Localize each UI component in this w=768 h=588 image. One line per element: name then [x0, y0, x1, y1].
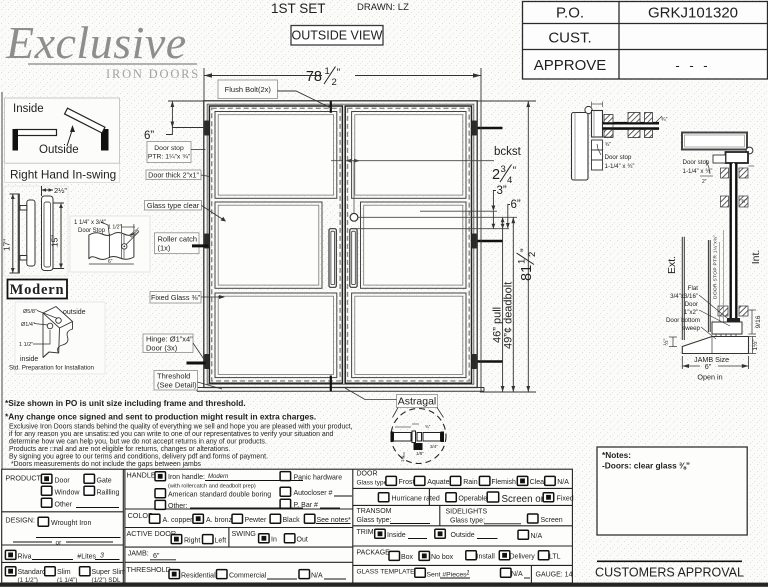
svg-text:1-1/4” x ¾”: 1-1/4” x ¾” [605, 163, 635, 170]
svg-text:HANDLE: HANDLE [127, 471, 156, 480]
svg-text:Delivery: Delivery [510, 554, 536, 561]
svg-text:1 1/2”: 1 1/2” [108, 225, 122, 231]
svg-text:(See Detail): (See Detail) [157, 380, 197, 389]
svg-text:Ext.: Ext. [666, 256, 678, 274]
svg-text:Door thick 2”x1”: Door thick 2”x1” [148, 170, 199, 179]
svg-text:6”: 6” [705, 362, 712, 371]
svg-text:Inside: Inside [387, 532, 406, 539]
svg-text:Iron handle:: Iron handle: [168, 474, 205, 481]
svg-text:1/8”: 1/8” [416, 451, 424, 456]
svg-text:6”: 6” [144, 130, 154, 142]
svg-text:Screen or: Screen or [502, 494, 545, 505]
svg-text:or: or [56, 540, 63, 547]
svg-text:sweep: sweep [682, 325, 700, 332]
svg-text:*Size shown in PO is unit size: *Size shown in PO is unit size including… [5, 398, 246, 408]
svg-text:Flat: Flat [688, 285, 699, 292]
svg-text:1 1/2”: 1 1/2” [19, 342, 33, 348]
svg-text:Gate: Gate [97, 478, 112, 485]
svg-text:P. Bar #: P. Bar # [294, 502, 318, 509]
svg-text:Products are □nal and are not: Products are □nal and are not eligible f… [9, 446, 230, 453]
svg-text:N/A: N/A [511, 571, 523, 578]
svg-text:Standard: Standard [18, 569, 47, 576]
svg-text:Other: Other [55, 502, 73, 509]
svg-text:Operable: Operable [458, 495, 487, 502]
svg-text:*Any change once signed and se: *Any change once signed and sent to prod… [5, 412, 316, 422]
svg-text:1-1/4” x ¾”: 1-1/4” x ¾” [683, 168, 713, 175]
svg-text:GAUGE: 14: GAUGE: 14 [536, 571, 573, 578]
svg-text:(with rollercatch and deadbolt: (with rollercatch and deadbolt prep) [168, 483, 256, 489]
svg-text:2½”: 2½” [54, 186, 67, 195]
svg-text:¾”: ¾” [661, 117, 668, 123]
svg-text:JAMB:: JAMB: [128, 549, 149, 558]
svg-text:Frost: Frost [399, 479, 415, 486]
svg-text:By signing you agree to our te: By signing you agree to our terms and co… [9, 454, 268, 461]
svg-text:Int.: Int. [750, 250, 762, 265]
svg-text:Open in: Open in [697, 373, 722, 382]
svg-text:1ST SET: 1ST SET [271, 1, 326, 16]
svg-text:Hinge: Ø1”x4”: Hinge: Ø1”x4” [146, 334, 193, 343]
svg-text:Sent #Pieces: Sent #Pieces [427, 571, 468, 578]
svg-text:Glass type:: Glass type: [357, 517, 392, 524]
svg-text:Modern: Modern [10, 282, 65, 298]
svg-text:See notes*: See notes* [317, 517, 352, 524]
svg-text:”: ” [519, 248, 531, 252]
svg-text:THRESHOLD: THRESHOLD [127, 565, 171, 574]
svg-text:Glass type: Glass type [357, 480, 388, 487]
svg-text:Fixed: Fixed [557, 495, 574, 502]
svg-text:Fixed Glass ⅜”: Fixed Glass ⅜” [151, 293, 201, 302]
svg-text:Other:: Other: [168, 503, 188, 510]
svg-text:Glass type:: Glass type: [450, 518, 485, 525]
svg-text:Window: Window [55, 490, 81, 497]
svg-text:”: ” [513, 165, 517, 177]
svg-text:PACKAGE: PACKAGE [357, 550, 391, 557]
svg-text:Door stop: Door stop [154, 145, 184, 152]
svg-text:GLASS TEMPLATE: GLASS TEMPLATE [357, 569, 416, 576]
svg-text:Roller catch: Roller catch [158, 234, 198, 243]
svg-text:N/A: N/A [531, 533, 543, 540]
svg-text:3: 3 [100, 553, 104, 560]
svg-text:CUST.: CUST. [548, 30, 591, 47]
svg-text:bckst: bckst [494, 146, 522, 158]
svg-text:DOOR STOP PTR 1¼”x¾”: DOOR STOP PTR 1¼”x¾” [713, 235, 719, 299]
svg-text:Flush Bolt(2x): Flush Bolt(2x) [225, 85, 272, 94]
svg-text:Screen: Screen [541, 517, 563, 524]
svg-text:4: 4 [507, 175, 512, 186]
svg-text:Super Slim: Super Slim [92, 569, 126, 576]
svg-text:DESIGN:: DESIGN: [5, 516, 35, 525]
svg-text:”: ” [337, 67, 341, 79]
svg-text:Door stop: Door stop [605, 154, 632, 161]
svg-text:78: 78 [306, 69, 322, 85]
svg-text:Threshold: Threshold [157, 371, 190, 380]
svg-text:½”: ½” [663, 338, 670, 345]
svg-text:6”: 6” [108, 259, 113, 265]
svg-text:Out: Out [297, 537, 308, 544]
svg-text:GRKJ101320: GRKJ101320 [648, 5, 738, 22]
svg-text:2: 2 [492, 167, 500, 183]
svg-text:1 1/4” x 3/4”: 1 1/4” x 3/4” [74, 220, 106, 226]
svg-text:Door: Door [55, 478, 71, 485]
svg-text:*Notes:: *Notes: [602, 450, 631, 460]
svg-text:Box: Box [401, 554, 414, 561]
svg-text:PTR: 1¼”x ¾”: PTR: 1¼”x ¾” [148, 154, 191, 161]
svg-text:Outside: Outside [39, 144, 79, 156]
svg-text:N/A: N/A [557, 479, 569, 486]
svg-text:In: In [271, 537, 277, 544]
svg-text:Autocloser #: Autocloser # [294, 490, 333, 497]
svg-text:Rain: Rain [463, 479, 478, 486]
svg-text:Ø1/4”: Ø1/4” [21, 322, 35, 328]
svg-text:Panic hardware: Panic hardware [294, 474, 343, 481]
svg-text:¾”: ¾” [741, 199, 747, 205]
svg-text:SWING: SWING [232, 529, 257, 538]
svg-text:Slim: Slim [57, 569, 71, 576]
svg-text:Exclusive Iron Doors stands be: Exclusive Iron Doors stands behind the q… [9, 424, 353, 431]
svg-text:Outside: Outside [451, 532, 475, 539]
svg-text:1: 1 [466, 570, 470, 577]
svg-text:1: 1 [325, 66, 330, 77]
svg-text:#Lites: #Lites [77, 554, 96, 561]
svg-text:IRON DOORS: IRON DOORS [106, 67, 200, 81]
svg-text:*Doors measurements do not inc: *Doors measurements do not include the g… [11, 461, 202, 468]
svg-text:Commercial: Commercial [229, 572, 267, 579]
svg-text:determine how we can help you,: determine how we can help you, but we do… [9, 439, 267, 446]
svg-text:Modern: Modern [208, 474, 229, 480]
svg-text:¾”: ¾” [425, 424, 431, 429]
svg-text:1½”: 1½” [751, 339, 759, 350]
svg-text:Exclusive: Exclusive [5, 17, 187, 68]
svg-text:1¾: 1¾ [400, 455, 405, 462]
svg-text:PRODUCT:: PRODUCT: [5, 474, 42, 483]
svg-text:3: 3 [501, 164, 506, 175]
svg-text:9/16: 9/16 [755, 315, 762, 328]
svg-text:DRAWN: LZ: DRAWN: LZ [357, 2, 409, 13]
svg-text:Door stop: Door stop [683, 159, 710, 166]
svg-text:CUSTOMERS APPROVAL: CUSTOMERS APPROVAL [595, 566, 744, 580]
svg-text:APPROVE: APPROVE [534, 57, 607, 74]
svg-text:Right: Right [184, 537, 200, 544]
svg-text:DOOR: DOOR [357, 471, 378, 478]
svg-text:Door: Door [685, 301, 698, 308]
svg-text:if for any reason you are unsa: if for any reason you are unsatis□ed you… [9, 431, 334, 438]
svg-text:outside: outside [63, 309, 86, 316]
svg-text:TRIM: TRIM [357, 529, 374, 536]
svg-text:Left: Left [215, 537, 227, 544]
svg-text:49”¢ deadbolt: 49”¢ deadbolt [503, 282, 515, 349]
svg-text:Door (3x): Door (3x) [146, 343, 178, 352]
svg-text:6”: 6” [511, 199, 521, 211]
svg-text:TRANSOM: TRANSOM [357, 508, 392, 515]
svg-text:Wrought Iron: Wrought Iron [51, 520, 91, 527]
svg-text:Hurricane rated: Hurricane rated [392, 496, 440, 503]
svg-text:Ø5/8”: Ø5/8” [23, 309, 37, 315]
svg-text:6”: 6” [153, 551, 160, 560]
svg-text:-Doors: clear glass ⅜”: -Doors: clear glass ⅜” [602, 461, 690, 471]
svg-text:OUTSIDE VIEW: OUTSIDE VIEW [292, 29, 383, 43]
svg-text:LTL: LTL [549, 554, 561, 561]
svg-text:Astragal: Astragal [398, 396, 437, 408]
svg-text:(1x): (1x) [158, 243, 171, 252]
svg-text:¾”: ¾” [605, 142, 611, 148]
svg-text:- - -: - - - [675, 58, 710, 73]
svg-text:Railling: Railling [97, 490, 120, 497]
svg-text:Black: Black [283, 517, 301, 524]
svg-text:1”x2”: 1”x2” [684, 309, 698, 316]
svg-text:17”: 17” [2, 239, 12, 251]
svg-text:Std. Preparation for Installat: Std. Preparation for Installation [9, 365, 95, 372]
svg-text:JAMB Size: JAMB Size [694, 355, 729, 364]
svg-text:81: 81 [519, 265, 535, 281]
svg-text:N/A: N/A [311, 572, 323, 579]
svg-text:Door bottom: Door bottom [666, 317, 700, 324]
svg-text:American standard double borin: American standard double boring [168, 491, 271, 498]
svg-text:3/4”x3/16”: 3/4”x3/16” [670, 293, 698, 300]
svg-text:P.O.: P.O. [556, 5, 584, 22]
svg-text:No box: No box [431, 554, 454, 561]
svg-text:ACTIVE DOOR: ACTIVE DOOR [127, 529, 177, 538]
svg-text:Inside: Inside [13, 103, 44, 115]
svg-text:inside: inside [20, 356, 38, 363]
svg-text:2”: 2” [702, 179, 707, 185]
svg-text:Riva: Riva [18, 554, 32, 561]
svg-text:15”: 15” [50, 235, 60, 247]
svg-text:SIDELIGHTS: SIDELIGHTS [446, 509, 488, 516]
svg-text:Right Hand In-swing: Right Hand In-swing [10, 168, 116, 182]
svg-text:Install: Install [477, 554, 496, 561]
svg-text:3/4”: 3/4” [430, 444, 438, 449]
svg-text:A. copper: A. copper [163, 517, 194, 524]
svg-text:Residential: Residential [181, 572, 216, 579]
svg-text:Glass type clear: Glass type clear [147, 201, 200, 210]
svg-text:Pewter: Pewter [245, 517, 267, 524]
svg-text:Flemish: Flemish [491, 479, 516, 486]
svg-text:3”: 3” [497, 185, 507, 197]
